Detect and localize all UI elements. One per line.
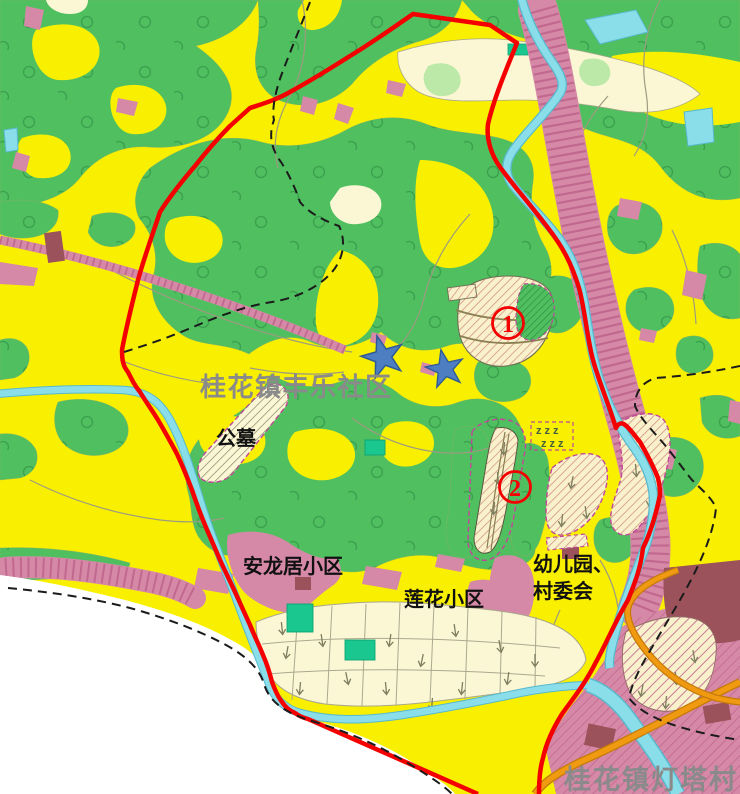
- label-kindergarten-2: 村委会: [533, 579, 593, 603]
- label-community: 桂花镇丰乐社区: [200, 372, 393, 402]
- label-village-bottom: 桂花镇灯塔村: [564, 765, 738, 794]
- marsh-symbol: zzz: [541, 438, 567, 450]
- label-cemetery: 公墓: [216, 426, 257, 450]
- marsh-symbol: zzz: [536, 425, 562, 437]
- label-anlongju: 安龙居小区: [243, 554, 343, 578]
- site2-number: 2: [509, 476, 521, 502]
- label-lianhua: 莲花小区: [404, 587, 484, 611]
- land-use-map-canvas[interactable]: 1 2 zzz zzz 桂花镇丰乐社区 公墓 安龙居小区 莲花小区 幼儿园、 村…: [0, 0, 740, 794]
- site1-number: 1: [502, 312, 514, 338]
- label-kindergarten-1: 幼儿园、: [533, 552, 613, 576]
- map-viewport: 1 2 zzz zzz 桂花镇丰乐社区 公墓 安龙居小区 莲花小区 幼儿园、 村…: [0, 0, 740, 794]
